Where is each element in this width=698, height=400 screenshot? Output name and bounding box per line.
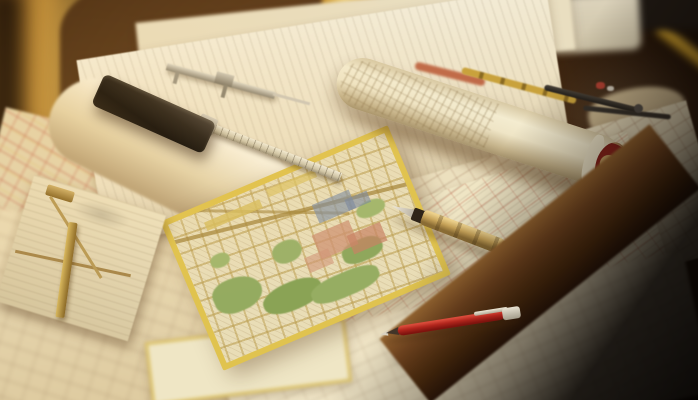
red-pen-clip-band [502, 306, 522, 321]
map-pink-district [304, 248, 334, 273]
photo-desk-scene [0, 0, 698, 400]
caliper-depth-rod [273, 93, 310, 106]
map-park [208, 250, 232, 271]
map-yellow-block-row [266, 169, 317, 197]
paper-bit [607, 86, 614, 91]
caliper-jaw [221, 85, 228, 99]
caliper-jaw [173, 71, 180, 85]
map-park [269, 236, 305, 268]
map-park [208, 269, 267, 320]
compass-hinge [634, 104, 643, 113]
red-pen-tip [380, 331, 389, 337]
red-eraser-bit [596, 82, 605, 89]
